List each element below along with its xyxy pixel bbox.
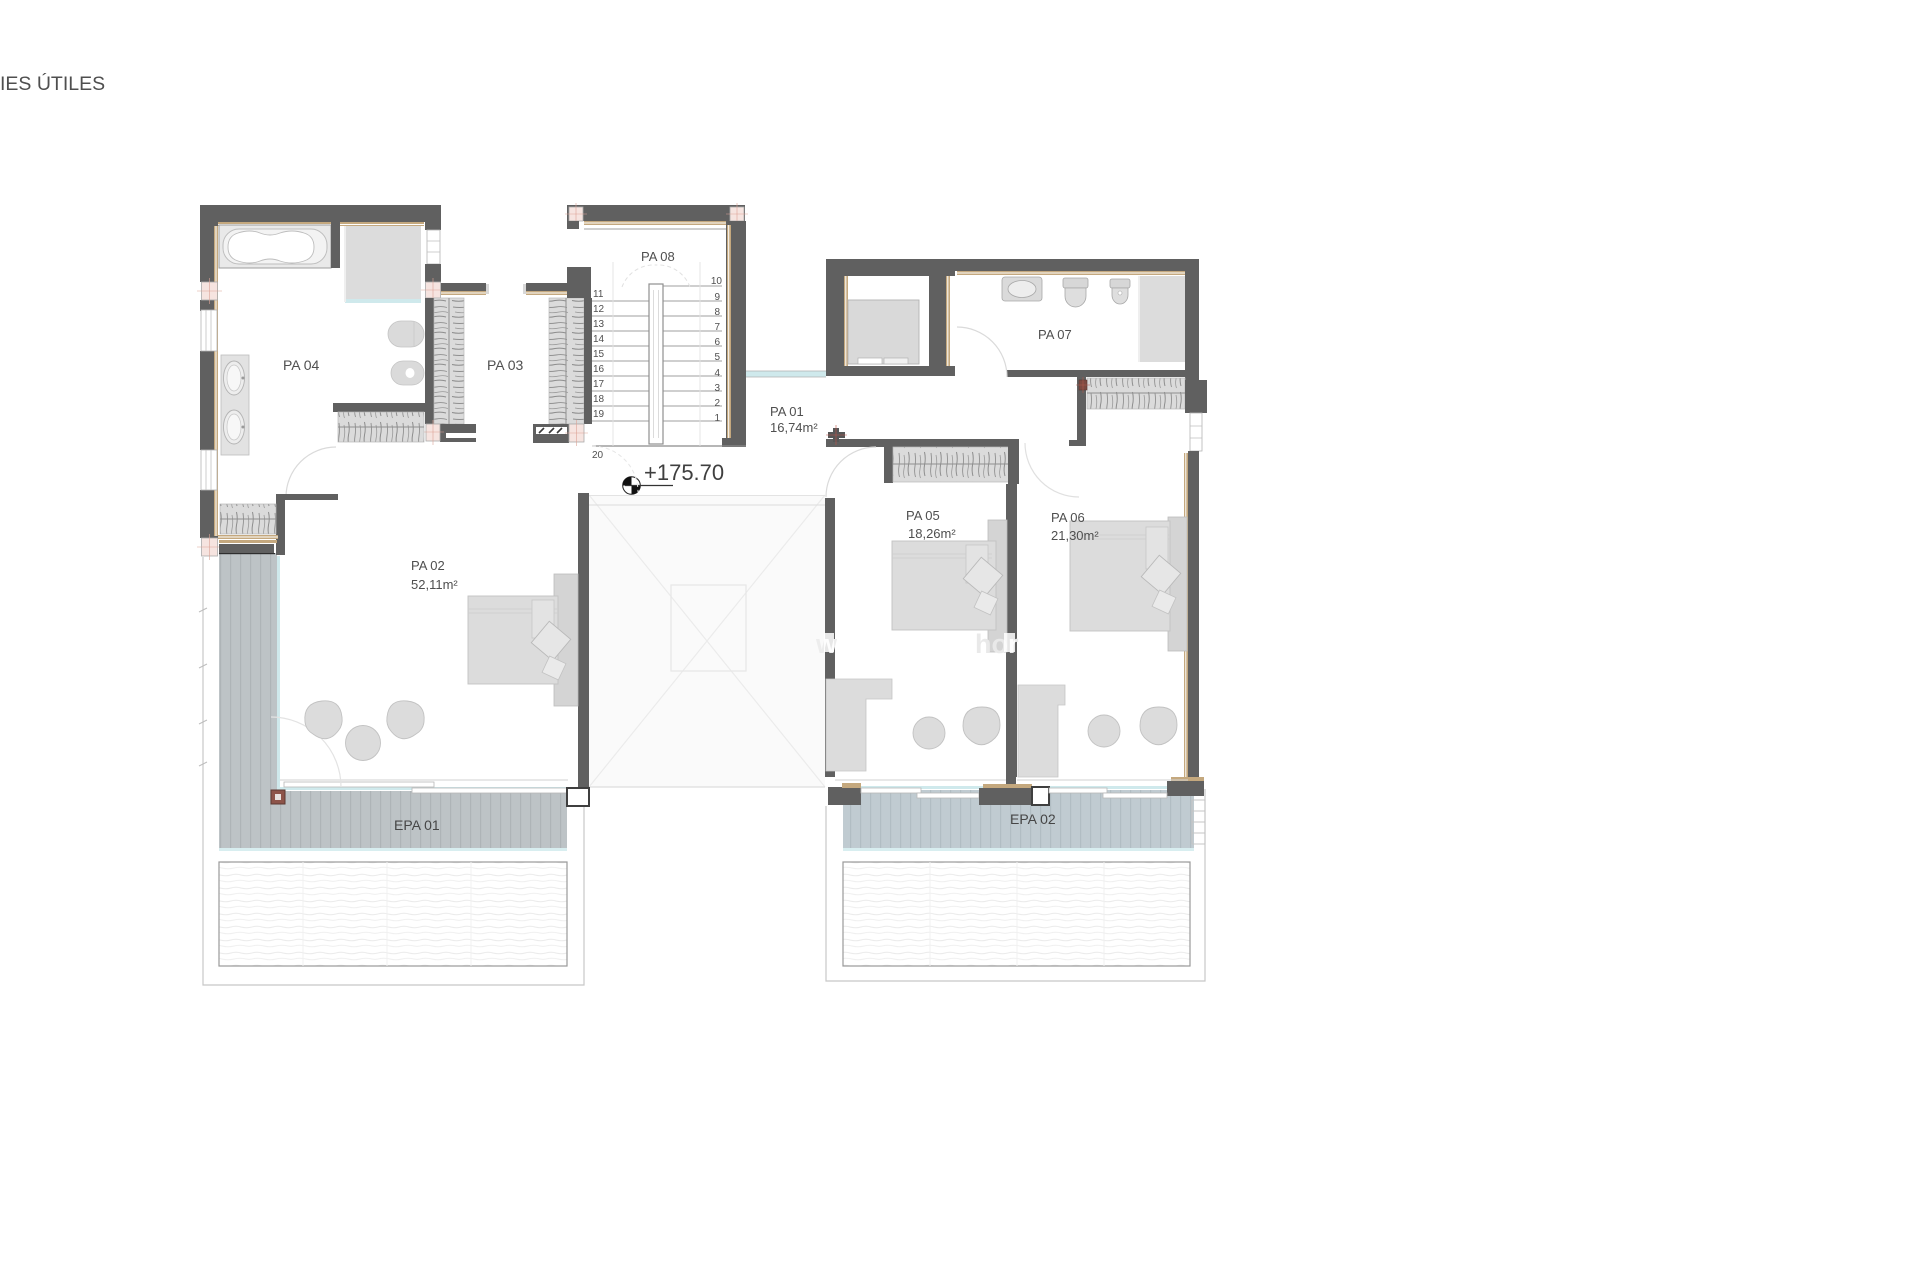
svg-text:PA 07: PA 07 [1038,327,1072,342]
svg-text:PA 01: PA 01 [770,404,804,419]
svg-text:+175.70: +175.70 [644,460,724,485]
svg-text:15: 15 [593,349,605,360]
svg-text:PA 05: PA 05 [906,508,940,523]
svg-text:20: 20 [592,450,604,461]
svg-text:PA 06: PA 06 [1051,510,1085,525]
svg-text:PA 03: PA 03 [487,357,524,373]
svg-text:6: 6 [714,337,720,348]
svg-text:7: 7 [714,322,720,333]
svg-text:18,26m²: 18,26m² [908,526,956,541]
svg-text:16,74m²: 16,74m² [770,420,818,435]
svg-text:9: 9 [714,292,720,303]
svg-text:8: 8 [714,307,720,318]
svg-text:10: 10 [711,276,723,287]
svg-text:1: 1 [714,413,720,424]
svg-text:21,30m²: 21,30m² [1051,528,1099,543]
svg-text:IES ÚTILES: IES ÚTILES [0,72,105,95]
svg-text:PA 04: PA 04 [283,357,320,373]
svg-text:3: 3 [714,383,720,394]
svg-text:13: 13 [593,319,605,330]
svg-text:11: 11 [593,289,604,300]
svg-text:2: 2 [714,398,720,409]
svg-text:52,11m²: 52,11m² [411,577,458,592]
svg-text:5: 5 [714,352,720,363]
svg-text:PA 02: PA 02 [411,558,445,573]
svg-text:12: 12 [593,304,605,315]
svg-text:19: 19 [593,409,605,420]
svg-text:EPA 01: EPA 01 [394,817,440,833]
svg-text:17: 17 [593,379,605,390]
svg-text:4: 4 [714,368,720,379]
svg-text:18: 18 [593,394,605,405]
svg-text:PA 08: PA 08 [641,249,675,264]
svg-text:16: 16 [593,364,605,375]
svg-text:EPA 02: EPA 02 [1010,811,1056,827]
svg-text:14: 14 [593,334,605,345]
